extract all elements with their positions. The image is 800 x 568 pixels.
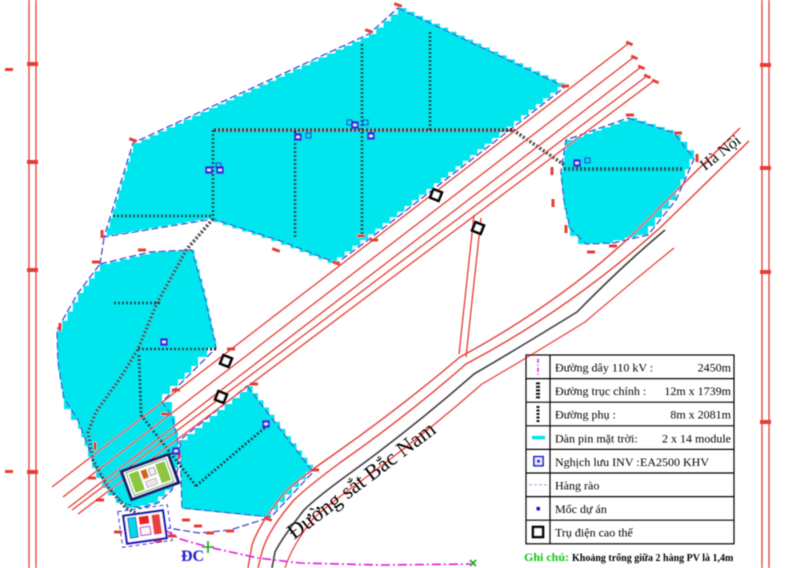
svg-text:12m x 1739m: 12m x 1739m: [664, 384, 731, 398]
svg-text:Dàn pin mặt trời:: Dàn pin mặt trời:: [555, 431, 638, 445]
svg-text:2 x 14 module: 2 x 14 module: [662, 431, 731, 445]
svg-text:2450m: 2450m: [698, 361, 732, 375]
svg-text:Khoảng trống giữa 2 hàng PV là: Khoảng trống giữa 2 hàng PV là 1,4m: [572, 553, 734, 564]
svg-text:8m x 2081m: 8m x 2081m: [670, 408, 731, 422]
svg-text:Trụ điện cao thế: Trụ điện cao thế: [555, 526, 634, 540]
svg-text:ĐC: ĐC: [181, 548, 204, 565]
svg-text:Đường phụ :: Đường phụ :: [555, 408, 616, 422]
svg-text:Đường dây 110 kV :: Đường dây 110 kV :: [555, 361, 653, 375]
svg-text:Mốc dự án: Mốc dự án: [555, 502, 607, 516]
svg-text:EA2500 KHV: EA2500 KHV: [640, 455, 709, 469]
svg-text:Ghi chú:: Ghi chú:: [524, 550, 569, 564]
svg-text:Đường trục chính :: Đường trục chính :: [555, 384, 646, 398]
svg-text:Hàng rào: Hàng rào: [555, 479, 599, 493]
svg-text:Nghịch lưu INV :: Nghịch lưu INV :: [555, 455, 640, 469]
